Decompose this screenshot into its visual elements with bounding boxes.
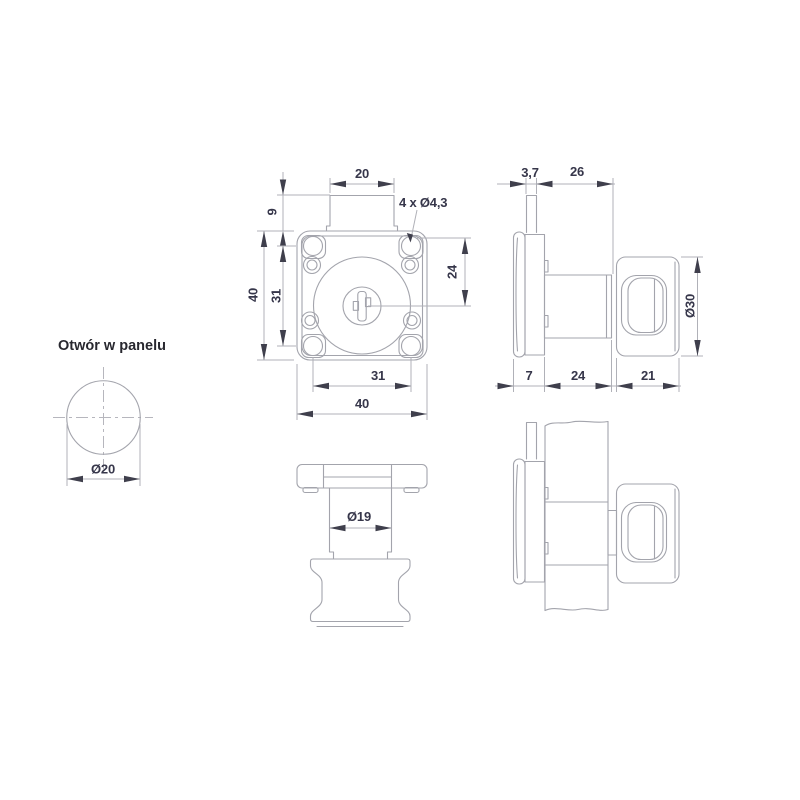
plate-inner-outline bbox=[302, 236, 423, 356]
cylinder-neck bbox=[608, 511, 617, 556]
dim-knob-diameter: Ø30 bbox=[681, 257, 703, 356]
panel-break bbox=[545, 421, 608, 610]
flange-face-curve bbox=[516, 238, 518, 351]
dim-label-hole-pitch-h: 31 bbox=[371, 368, 385, 383]
dim-label-cylinder-len: 24 bbox=[571, 368, 586, 383]
top-tab-side bbox=[527, 423, 537, 460]
dim-label-tab-thickness: 3,7 bbox=[521, 165, 538, 180]
technical-drawing: Otwór w panelu Ø20 bbox=[0, 0, 800, 800]
latch-tab bbox=[545, 543, 549, 555]
panel-hole-view: Otwór w panelu Ø20 bbox=[53, 338, 166, 486]
knob-outline bbox=[617, 484, 680, 583]
knob-outline bbox=[617, 257, 680, 356]
dim-hole-pitch-horizontal: 31 bbox=[313, 357, 411, 392]
dim-center-offset: 24 bbox=[417, 238, 471, 306]
top-tab bbox=[327, 196, 398, 232]
flange-top bbox=[297, 465, 427, 489]
flange-face-curve bbox=[516, 465, 518, 578]
top-tab-side bbox=[527, 196, 537, 233]
counterbored-holes bbox=[302, 257, 421, 330]
front-view: 20 9 40 31 24 3 bbox=[246, 166, 472, 420]
latch-tab bbox=[545, 488, 549, 500]
plate-outline bbox=[297, 231, 427, 360]
dim-label-plate-width: 40 bbox=[355, 396, 369, 411]
flange-side bbox=[514, 232, 526, 357]
cylinder-side bbox=[545, 275, 612, 338]
cam-knob-top bbox=[311, 559, 411, 622]
cylinder-through-panel bbox=[545, 502, 609, 565]
dim-label-hole-pitch-v: 31 bbox=[269, 289, 284, 303]
mount-hole bbox=[304, 237, 323, 256]
dim-label-center-offset: 24 bbox=[445, 264, 460, 279]
knob-grip-inner bbox=[628, 278, 663, 333]
mount-hole bbox=[304, 337, 323, 356]
dim-label-clamp-depth: 26 bbox=[570, 164, 584, 179]
dim-label-mount-holes: 4 x Ø4,3 bbox=[399, 195, 447, 210]
hole-boss bbox=[302, 335, 326, 358]
dim-tab-width: 20 bbox=[330, 166, 394, 193]
lock-case-side bbox=[525, 235, 545, 356]
dim-label-flange-depth: 7 bbox=[525, 368, 532, 383]
dim-label-plate-height: 40 bbox=[246, 288, 261, 302]
dim-label-knob-len: 21 bbox=[641, 368, 655, 383]
dim-side-lengths: 7 24 21 bbox=[495, 340, 681, 392]
mount-hole bbox=[402, 337, 421, 356]
hole-boss bbox=[399, 335, 423, 358]
flange-side bbox=[514, 459, 526, 584]
dim-label-tab-width: 20 bbox=[355, 166, 369, 181]
dim-plate-width: 40 bbox=[297, 364, 427, 420]
latch-tab bbox=[545, 261, 549, 273]
technical-drawing-page: Otwór w panelu Ø20 bbox=[0, 0, 800, 800]
top-view: Ø19 bbox=[297, 465, 427, 627]
dim-cylinder-diameter: Ø19 bbox=[330, 509, 392, 531]
knob-grip-inner bbox=[628, 505, 663, 560]
dim-hole-pitch-vertical: 31 bbox=[269, 246, 297, 346]
mounted-view bbox=[514, 421, 680, 610]
panel-hole-title: Otwór w panelu bbox=[58, 338, 166, 354]
dim-label-cylinder-dia: Ø19 bbox=[347, 509, 371, 524]
dim-tab-thickness-and-clamp: 3,7 26 bbox=[497, 164, 615, 274]
flange-tab-lines bbox=[324, 465, 392, 488]
side-view: 3,7 26 Ø30 7 24 21 bbox=[495, 164, 703, 392]
lock-case-side bbox=[525, 462, 545, 583]
dim-label-panel-hole-dia: Ø20 bbox=[91, 462, 115, 477]
dim-label-knob-dia: Ø30 bbox=[683, 294, 698, 318]
dim-label-tab-height: 9 bbox=[265, 208, 280, 215]
